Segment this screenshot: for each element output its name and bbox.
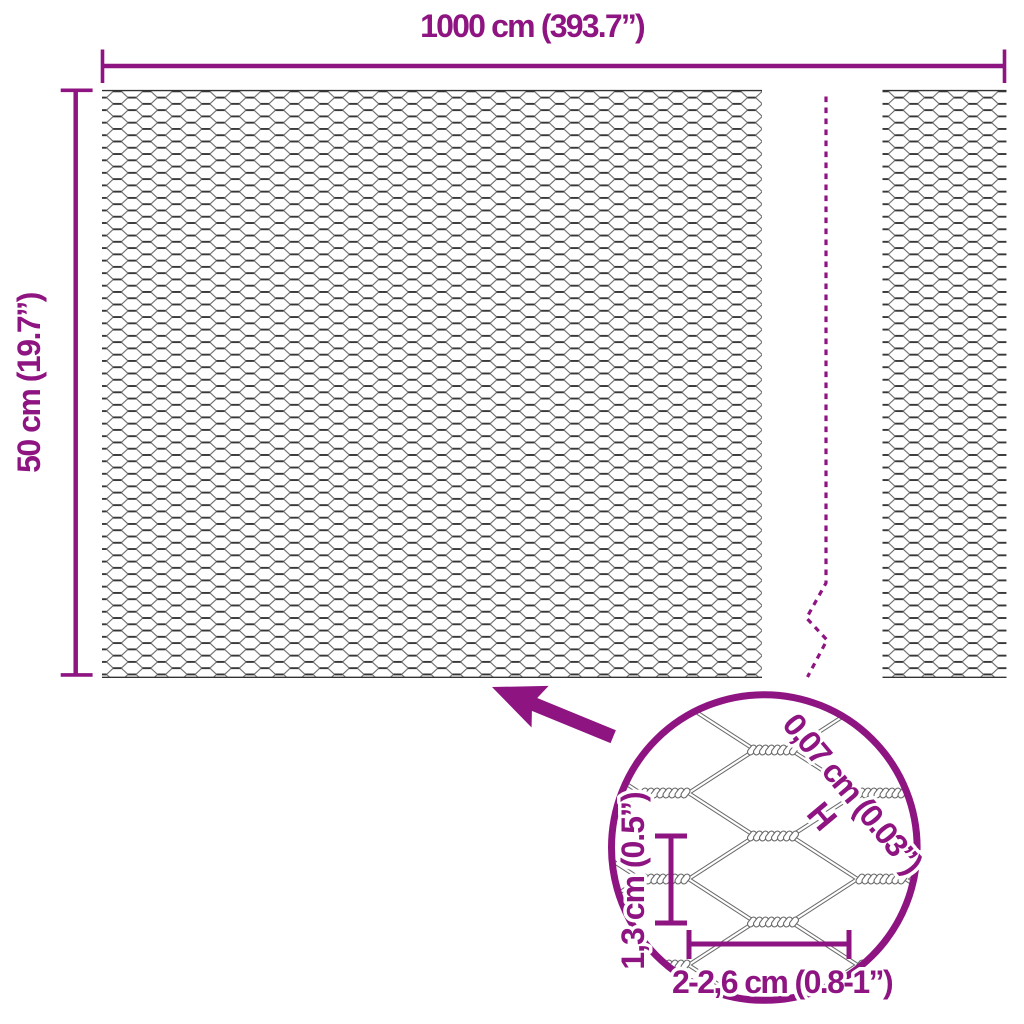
svg-text:1000 cm (393.7”): 1000 cm (393.7”) [420, 8, 645, 44]
svg-text:2-2,6 cm (0.8-1”): 2-2,6 cm (0.8-1”) [672, 964, 893, 1000]
svg-text:1,3 cm (0.5”): 1,3 cm (0.5”) [615, 792, 651, 970]
svg-text:50 cm (19.7”): 50 cm (19.7”) [11, 292, 47, 473]
